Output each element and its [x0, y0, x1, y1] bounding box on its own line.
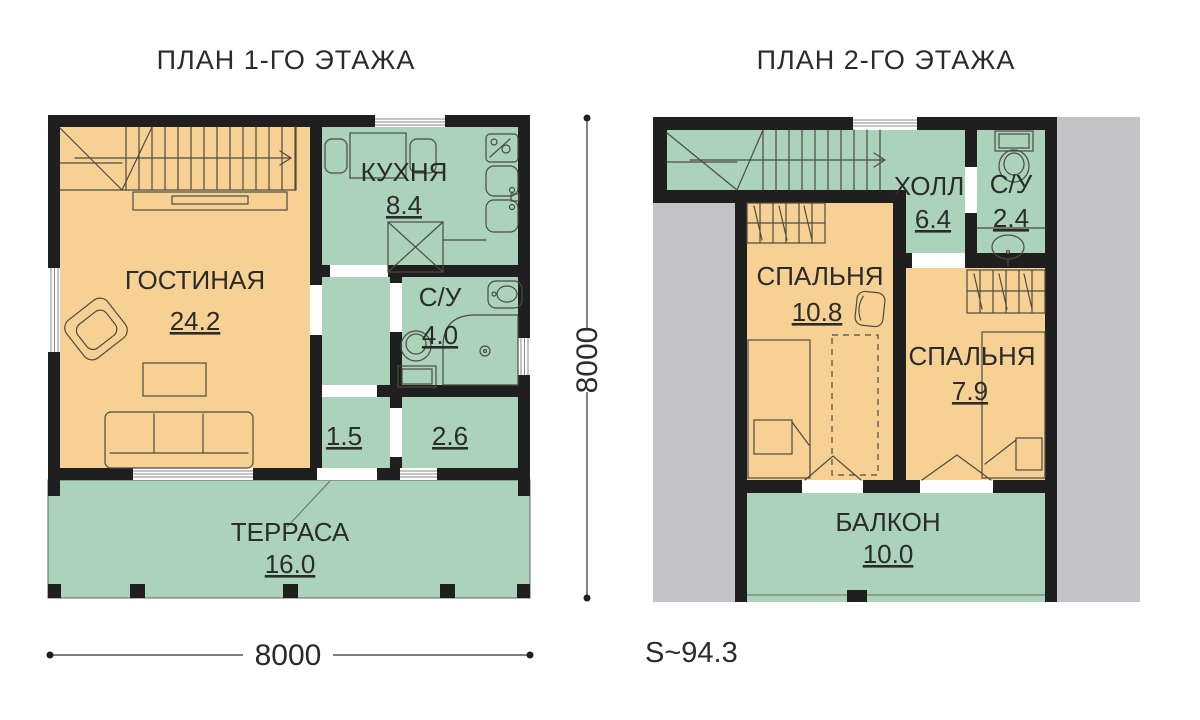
room-label: С/У [419, 282, 462, 312]
window [375, 115, 445, 127]
total-area-label: S~94.3 [645, 637, 738, 669]
room-area: 6.4 [915, 204, 951, 234]
wall-stub [48, 480, 60, 496]
window [518, 338, 530, 375]
room-area: 4.0 [422, 320, 458, 350]
room-area: 2.6 [432, 421, 468, 451]
room-label: КУХНЯ [361, 157, 448, 187]
room-label: ГОСТИНАЯ [125, 265, 265, 295]
window [48, 268, 60, 352]
room-area: 8.4 [386, 190, 422, 220]
window [400, 468, 437, 480]
room-area: 16.0 [265, 549, 316, 579]
room-area: 10.0 [863, 539, 914, 569]
room-label: БАЛКОН [835, 507, 940, 537]
height-dimension-label: 8000 [571, 327, 604, 394]
first-floor-plan: ПЛАН 1-ГО ЭТАЖА [48, 45, 530, 598]
room-area: 24.2 [170, 306, 221, 336]
width-dimension: 8000 [47, 639, 534, 672]
plan-title: ПЛАН 1-ГО ЭТАЖА [157, 45, 416, 75]
room-label: ХОЛЛ [894, 171, 965, 201]
room-area: 10.8 [792, 297, 843, 327]
hallway [322, 277, 390, 385]
room-label: ТЕРРАСА [231, 517, 350, 547]
living-room [60, 127, 310, 468]
window [133, 468, 253, 480]
room-area: 7.9 [952, 376, 988, 406]
width-dimension-label: 8000 [255, 639, 322, 672]
bedroom-2 [906, 268, 1045, 480]
room-label: СПАЛЬНЯ [908, 341, 1035, 371]
bedroom-1 [747, 203, 893, 480]
room-area: 2.4 [993, 203, 1029, 233]
room-label: С/У [990, 169, 1033, 199]
height-dimension: 8000 [571, 115, 604, 602]
window [853, 117, 917, 130]
balcony-post [847, 590, 867, 602]
floor-plan-canvas: ПЛАН 1-ГО ЭТАЖА [0, 0, 1200, 720]
wall-stub [518, 480, 530, 496]
plan-title: ПЛАН 2-ГО ЭТАЖА [757, 45, 1016, 75]
second-floor-plan: ПЛАН 2-ГО ЭТАЖА [653, 45, 1140, 602]
room-label: СПАЛЬНЯ [756, 261, 883, 291]
room-area: 1.5 [326, 421, 362, 451]
floor-plan-page: ПЛАН 1-ГО ЭТАЖА [0, 0, 1200, 720]
